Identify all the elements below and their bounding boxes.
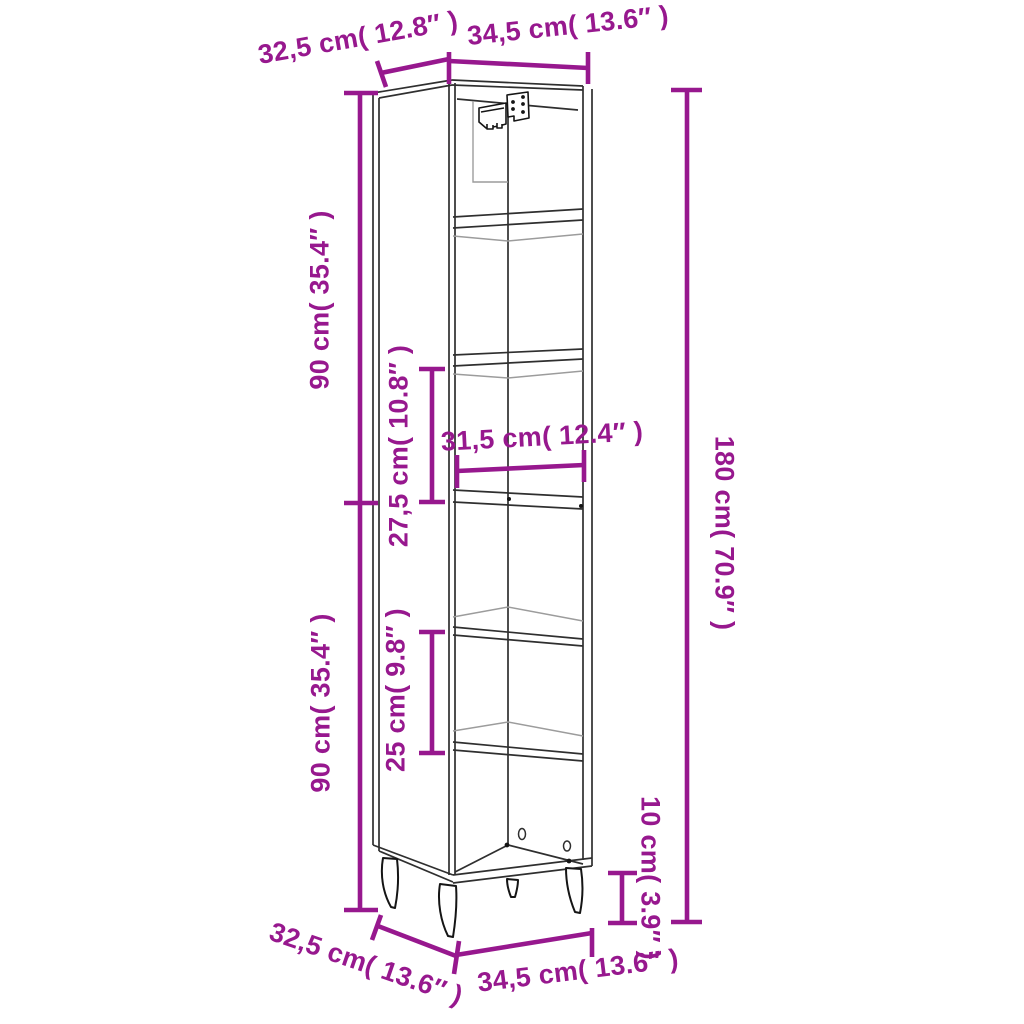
- dim-label-upper-height: 90 cm( 35.4″ ): [305, 210, 336, 389]
- leg-back-middle: [507, 879, 518, 897]
- dim-label-upper-shelf-gap: 27,5 cm( 10.8″ ): [384, 345, 415, 547]
- legs: [382, 858, 583, 937]
- shelf-lines: [453, 209, 583, 872]
- leg-back-left: [382, 858, 398, 908]
- hinge-bracket: [473, 92, 529, 182]
- leg-front-left: [439, 884, 456, 937]
- leg-front-right: [566, 868, 582, 913]
- dim-label-leg-height: 10 cm( 3.9″ ): [635, 796, 666, 960]
- dim-label-total-height: 180 cm( 70.9″ ): [709, 436, 740, 631]
- cabinet-line-art: [0, 0, 1024, 1024]
- dim-label-lower-height: 90 cm( 35.4″ ): [306, 613, 337, 792]
- dimension-diagram: 32,5 cm( 12.8″ ) 34,5 cm( 13.6″ ) 90 cm(…: [0, 0, 1024, 1024]
- dim-label-lower-shelf-gap: 25 cm( 9.8″ ): [381, 608, 412, 772]
